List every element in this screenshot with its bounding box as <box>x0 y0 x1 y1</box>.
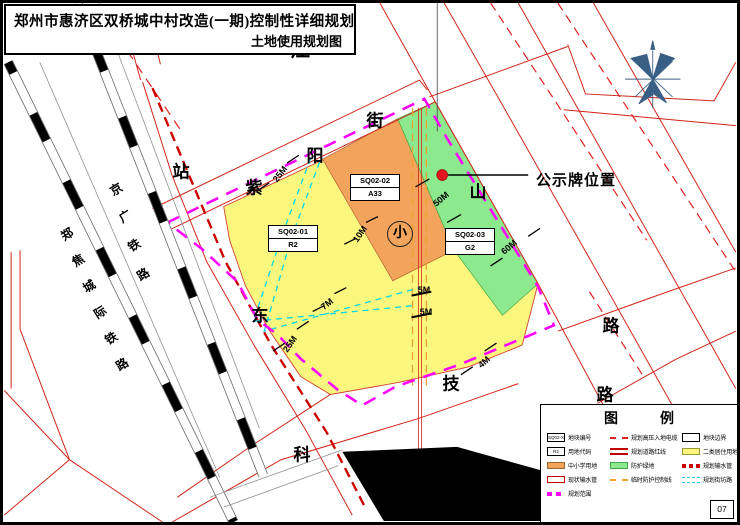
school-symbol-char: 小 <box>393 226 407 241</box>
legend-grid: SQ02-X 地块编号 规划高压入地电缆 地块边界 R2 用地代码 规划道路红线 <box>541 430 737 498</box>
legend-label: 临时防护控制线 <box>631 475 672 484</box>
legend-label: 地块编号 <box>568 433 591 442</box>
parcel-boundary-swatch <box>682 433 700 442</box>
legend-item-planning-scope: 规划范围 <box>547 489 610 498</box>
planning-scope-swatch <box>547 492 565 496</box>
road-label-char: 路 <box>603 312 620 337</box>
map-subtitle: 土地使用规划图 <box>14 31 346 50</box>
parcel-code: A33 <box>351 188 399 200</box>
legend-label: 规划道路红线 <box>631 447 666 456</box>
legend-item-road-redline: 规划道路红线 <box>610 447 682 456</box>
road-label-char: 紫 <box>246 174 263 199</box>
legend-label: 二类居住用地 <box>703 447 738 456</box>
railway-zhengjiao <box>8 62 233 522</box>
road-label-char: 路 <box>401 458 418 483</box>
parcel-number-swatch: SQ02-X <box>547 433 565 442</box>
legend-item-parcel-number: SQ02-X 地块编号 <box>547 433 610 442</box>
legend-title: 图 例 <box>541 405 737 430</box>
parcel-id: SQ02-01 <box>269 226 317 239</box>
road-label-char: 站 <box>173 158 190 183</box>
parcel-label-sq02-03: SQ02-03 G2 <box>445 228 495 255</box>
north-arrow-icon <box>625 41 680 108</box>
parcel-id: SQ02-02 <box>351 175 399 188</box>
legend-item-school: 中小学用地 <box>547 461 610 470</box>
planned-water-pipe-swatch <box>682 464 700 468</box>
road-label-char: 技 <box>443 370 460 395</box>
planning-map-page: 郑州市惠济区双桥城中村改造(一期)控制性详细规划 土地使用规划图 江 山 路 紫… <box>0 0 740 525</box>
school-swatch <box>547 462 565 469</box>
road-label-char: 科 <box>294 441 311 466</box>
legend-label: 规划高压入地电缆 <box>631 433 677 442</box>
legend-label: 现状输水管 <box>568 475 597 484</box>
legend-label: 用地代码 <box>568 447 591 456</box>
land-code-swatch: R2 <box>547 447 565 456</box>
road-label-char: 路 <box>597 381 614 406</box>
residential-swatch <box>682 448 700 455</box>
map-title: 郑州市惠济区双桥城中村改造(一期)控制性详细规划 <box>14 10 346 31</box>
road-label-char: 山 <box>470 178 487 203</box>
parcel-code: G2 <box>446 242 494 254</box>
parcel-id: SQ02-03 <box>446 229 494 242</box>
title-block: 郑州市惠济区双桥城中村改造(一期)控制性详细规划 土地使用规划图 <box>4 4 356 55</box>
parcel-code: R2 <box>269 239 317 251</box>
road-label-char: 东 <box>252 302 269 327</box>
legend-label: 中小学用地 <box>568 461 597 470</box>
temp-protection-swatch <box>610 479 628 481</box>
road-label-char: 街 <box>367 107 384 132</box>
parcel-label-sq02-02: SQ02-02 A33 <box>350 174 400 201</box>
legend-item-temp-protection: 临时防护控制线 <box>610 475 682 484</box>
legend-label: 规划输水管 <box>703 461 732 470</box>
dimension-label: 5M <box>418 285 431 295</box>
legend-box: 图 例 SQ02-X 地块编号 规划高压入地电缆 地块边界 R2 用地代码 规划… <box>540 404 738 523</box>
legend-label: 规划范围 <box>568 489 591 498</box>
legend-label: 地块边界 <box>703 433 726 442</box>
legend-item-land-code: R2 用地代码 <box>547 447 610 456</box>
road-label-char: 阳 <box>307 142 324 167</box>
existing-water-pipe-swatch <box>547 476 565 483</box>
road-redline-swatch <box>610 448 628 455</box>
legend-item-residential: 二类居住用地 <box>682 447 740 456</box>
legend-item-green-buffer: 防护绿地 <box>610 461 682 470</box>
legend-item-neighborhood-road: 规划街坊路 <box>682 475 740 484</box>
legend-label: 防护绿地 <box>631 461 654 470</box>
neighborhood-road-swatch <box>682 477 700 483</box>
notice-board-label: 公示牌位置 <box>536 169 616 190</box>
legend-label: 规划街坊路 <box>703 475 732 484</box>
notice-dot <box>437 170 448 181</box>
hv-cable-swatch <box>610 437 628 439</box>
dimension-label: 5M <box>420 307 433 317</box>
legend-item-existing-water-pipe: 现状输水管 <box>547 475 610 484</box>
legend-item-parcel-boundary: 地块边界 <box>682 433 740 442</box>
parcel-label-sq02-01: SQ02-01 R2 <box>268 225 318 252</box>
legend-item-planned-water-pipe: 规划输水管 <box>682 461 740 470</box>
green-buffer-swatch <box>610 462 628 469</box>
legend-item-hv-cable: 规划高压入地电缆 <box>610 433 682 442</box>
school-symbol: 小 <box>387 221 413 247</box>
page-number: 07 <box>710 500 734 519</box>
